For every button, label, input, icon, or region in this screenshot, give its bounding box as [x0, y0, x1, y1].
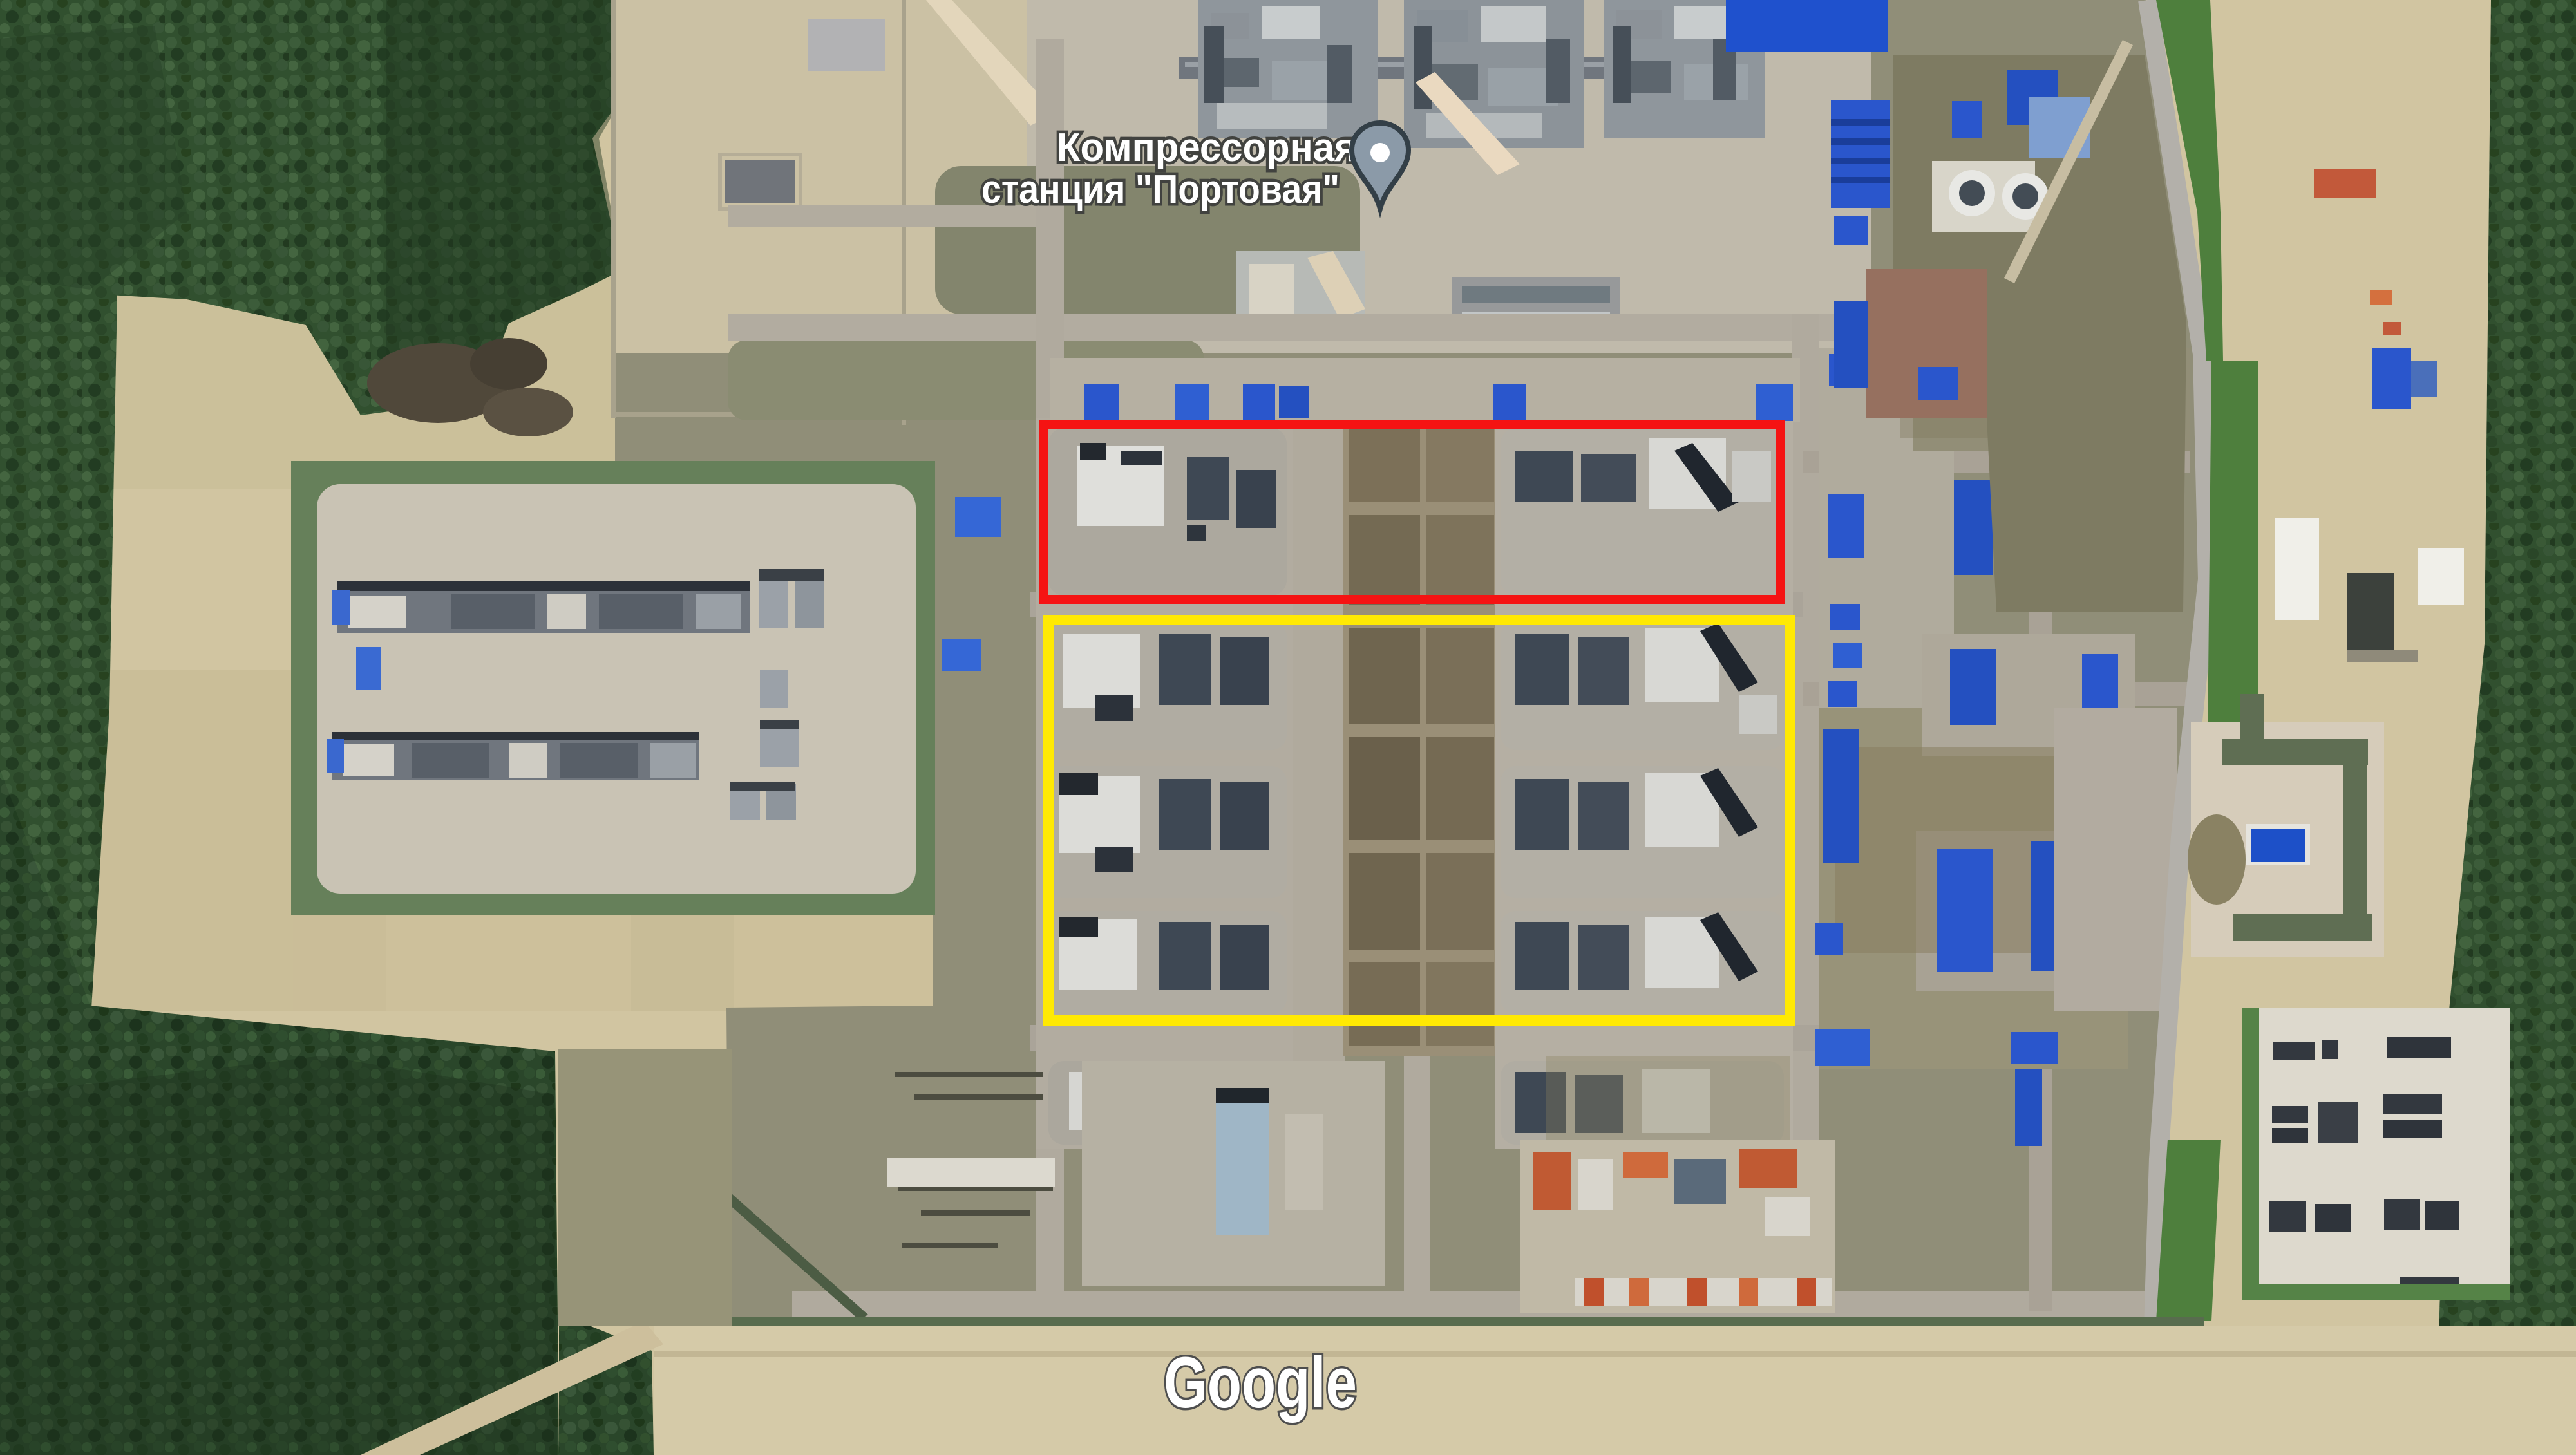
svg-text:Компрессорная: Компрессорная: [1057, 126, 1357, 170]
svg-text:Google: Google: [1164, 1342, 1357, 1423]
svg-text:станция "Портовая": станция "Портовая": [981, 167, 1340, 212]
